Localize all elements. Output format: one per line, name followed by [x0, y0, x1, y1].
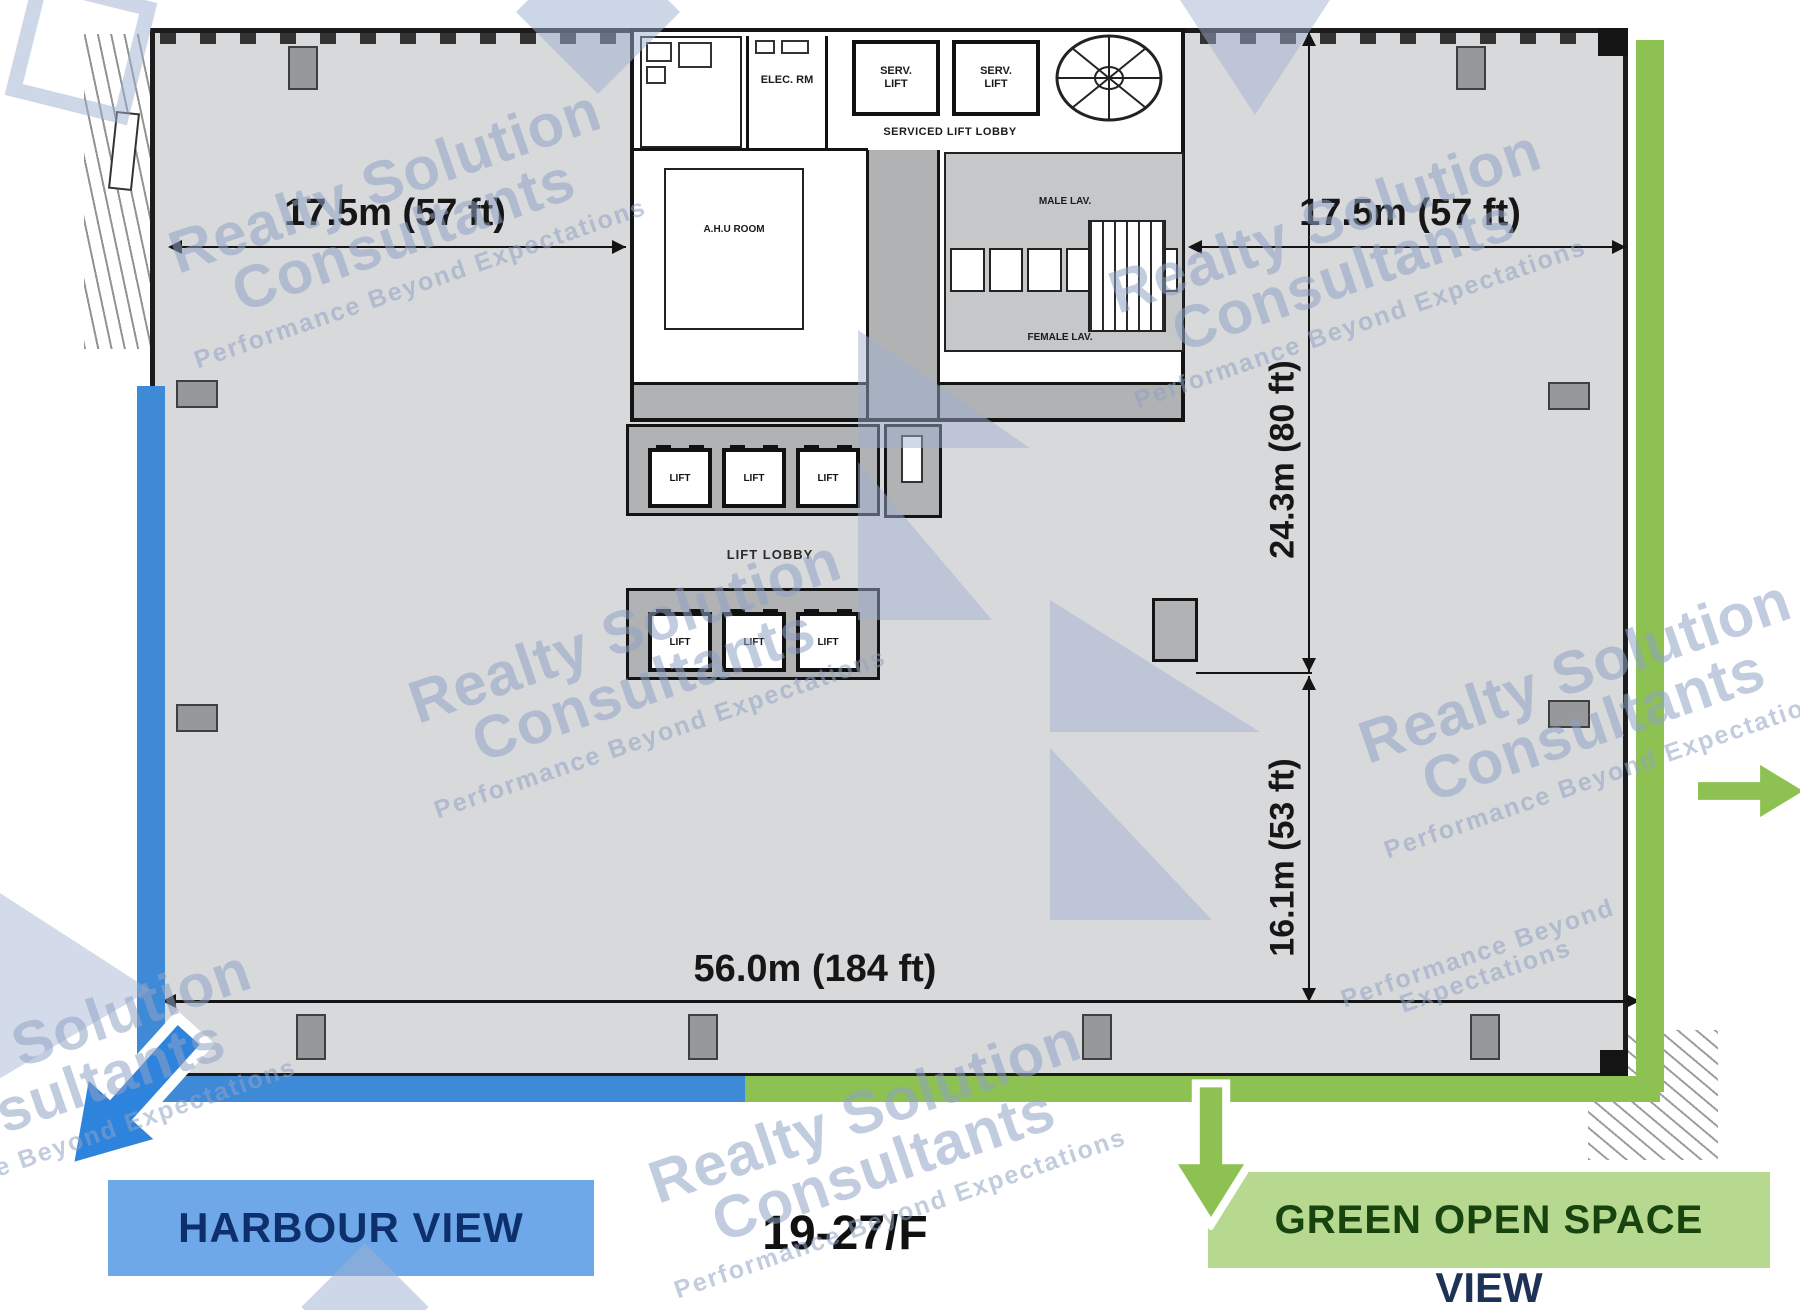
ahu-room: A.H.U ROOM — [664, 168, 804, 330]
serviced-lift-lobby-label: SERVICED LIFT LOBBY — [840, 126, 1060, 139]
female-lav-label: FEMALE LAV. — [975, 332, 1145, 344]
facade-hatch-topleft — [84, 34, 156, 349]
column — [688, 1014, 718, 1060]
lift-4: LIFT — [648, 612, 712, 672]
elec-room-label: ELEC. RM — [749, 74, 825, 87]
dim-label-core-depth: 24.3m (80 ft) — [1264, 305, 1303, 615]
harbour-view-label: HARBOUR VIEW — [178, 1204, 524, 1252]
dim-arrow — [1302, 32, 1316, 46]
service-lift-label: SERV. LIFT — [973, 65, 1019, 90]
lift-label: LIFT — [743, 473, 764, 484]
dim-label-right-width: 17.5m (57 ft) — [1180, 192, 1640, 235]
corner-wall-bottomright — [1600, 1050, 1628, 1078]
shaft-door — [901, 435, 923, 483]
toilet-stall — [950, 248, 985, 292]
column — [1456, 46, 1486, 90]
stair-block — [1088, 220, 1166, 332]
dim-line-total-width — [166, 1000, 1640, 1003]
floor-plan: ELEC. RM SERV. LIFT SERV. LIFT SERVICED … — [0, 0, 1800, 1310]
elec-fixture — [781, 40, 809, 54]
lift-6: LIFT — [796, 612, 860, 672]
spiral-stair — [1050, 32, 1168, 126]
core-inner-wall — [632, 148, 868, 151]
floor-range-label: 19-27/F — [700, 1206, 990, 1261]
dim-label-total-width: 56.0m (184 ft) — [580, 948, 1050, 991]
green-open-space-label-box: GREEN OPEN SPACE — [1208, 1172, 1770, 1268]
ahu-room-label: A.H.U ROOM — [666, 224, 802, 236]
column — [1470, 1014, 1500, 1060]
service-shaft — [884, 424, 942, 518]
dim-arrow — [1302, 676, 1316, 690]
dim-arrow — [1302, 658, 1316, 672]
lift-1: LIFT — [648, 448, 712, 508]
dim-line-right — [1190, 246, 1626, 248]
column — [176, 380, 218, 408]
dim-arrow — [612, 240, 626, 254]
column — [296, 1014, 326, 1060]
pantry-fixture — [646, 42, 672, 62]
column — [1548, 382, 1590, 410]
dim-line-lower-depth — [1308, 676, 1310, 1002]
green-view-strip-right — [1636, 40, 1664, 1092]
column — [176, 704, 218, 732]
green-open-space-label: GREEN OPEN SPACE — [1275, 1198, 1704, 1243]
harbour-view-label-box: HARBOUR VIEW — [108, 1180, 594, 1276]
column — [1548, 700, 1590, 728]
riser-box — [1152, 598, 1198, 662]
lift-3: LIFT — [796, 448, 860, 508]
lift-label: LIFT — [817, 637, 838, 648]
green-open-space-view-label: VIEW — [1208, 1264, 1770, 1310]
dim-arrow — [1188, 240, 1202, 254]
male-lav-label: MALE LAV. — [980, 196, 1150, 208]
lift-label: LIFT — [669, 473, 690, 484]
service-lift-2: SERV. LIFT — [952, 40, 1040, 116]
dim-tick — [1196, 672, 1312, 674]
pantry-fixture — [678, 42, 712, 68]
service-lift-label: SERV. LIFT — [873, 65, 919, 90]
column — [1082, 1014, 1112, 1060]
column — [288, 46, 318, 90]
toilet-stall — [989, 248, 1024, 292]
dim-line-core-depth — [1308, 32, 1310, 672]
service-lift-1: SERV. LIFT — [852, 40, 940, 116]
lift-2: LIFT — [722, 448, 786, 508]
lift-label: LIFT — [743, 637, 764, 648]
lift-label: LIFT — [817, 473, 838, 484]
green-space-right-arrow — [1692, 738, 1800, 844]
dim-label-left-width: 17.5m (57 ft) — [165, 192, 625, 235]
pantry-fixture — [646, 66, 666, 84]
toilet-stall — [1027, 248, 1062, 292]
green-space-down-arrow — [1146, 1078, 1276, 1230]
dim-line-left — [170, 246, 626, 248]
corner-wall-topright — [1598, 28, 1628, 56]
core-corridor-vertical — [866, 150, 940, 418]
lift-label: LIFT — [669, 637, 690, 648]
dim-arrow — [1612, 240, 1626, 254]
dim-arrow — [168, 240, 182, 254]
lift-5: LIFT — [722, 612, 786, 672]
elec-fixture — [755, 40, 775, 54]
elec-room: ELEC. RM — [746, 36, 828, 148]
lift-lobby-label: LIFT LOBBY — [700, 548, 840, 563]
dim-label-lower-depth: 16.1m (53 ft) — [1264, 703, 1303, 1013]
